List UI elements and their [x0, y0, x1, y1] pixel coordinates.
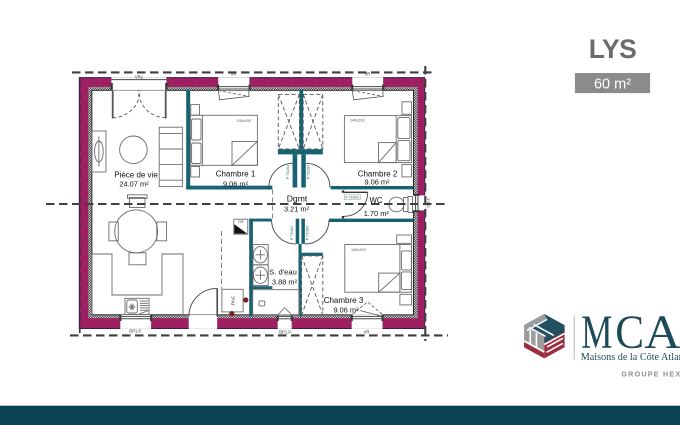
- svg-text:PAC: PAC: [231, 295, 237, 305]
- svg-text:C: C: [615, 305, 644, 359]
- svg-text:VR: VR: [364, 330, 370, 335]
- svg-text:P 73/204: P 73/204: [346, 195, 360, 199]
- svg-text:9.06 m²: 9.06 m²: [364, 178, 390, 187]
- svg-text:A: A: [644, 305, 680, 359]
- svg-text:140x200: 140x200: [350, 119, 365, 123]
- svg-text:24.07 m²: 24.07 m²: [119, 180, 149, 189]
- svg-text:3.88 m²: 3.88 m²: [272, 278, 298, 287]
- svg-text:S. d'eau: S. d'eau: [269, 268, 297, 277]
- svg-text:9.06 m²: 9.06 m²: [333, 306, 359, 315]
- svg-text:Pièce de vie: Pièce de vie: [114, 171, 158, 180]
- svg-text:Dgmt: Dgmt: [287, 193, 308, 203]
- svg-text:Chambre 1: Chambre 1: [216, 170, 256, 179]
- svg-text:VR: VR: [365, 72, 371, 77]
- svg-text:140x200: 140x200: [237, 119, 252, 123]
- svg-text:P 71/204: P 71/204: [305, 226, 309, 240]
- svg-text:GROUPE HEXAOM: GROUPE HEXAOM: [621, 369, 680, 378]
- svg-text:P 73/204: P 73/204: [307, 165, 311, 179]
- svg-text:3.21 m²: 3.21 m²: [284, 205, 310, 214]
- svg-text:1.70 m²: 1.70 m²: [364, 209, 390, 218]
- svg-text:VR: VR: [231, 72, 237, 77]
- svg-text:WC: WC: [370, 196, 383, 205]
- svg-text:SF0.6: SF0.6: [427, 198, 431, 207]
- svg-text:Maisons de la Côte Atlantique: Maisons de la Côte Atlantique: [581, 352, 680, 363]
- svg-text:9.06 m²: 9.06 m²: [223, 180, 249, 189]
- svg-text:60 m²: 60 m²: [594, 76, 631, 92]
- svg-text:Chambre 3: Chambre 3: [324, 296, 364, 305]
- svg-text:LYS: LYS: [589, 34, 637, 64]
- svg-text:BP1.8: BP1.8: [279, 330, 291, 335]
- svg-text:P 71/204: P 71/204: [290, 226, 294, 240]
- svg-text:TDF: TDF: [238, 220, 244, 224]
- svg-text:P 73/204: P 73/204: [286, 165, 290, 179]
- svg-text:VR1: VR1: [135, 74, 144, 79]
- svg-text:BP1.8: BP1.8: [129, 329, 141, 334]
- svg-text:140x200: 140x200: [351, 248, 366, 252]
